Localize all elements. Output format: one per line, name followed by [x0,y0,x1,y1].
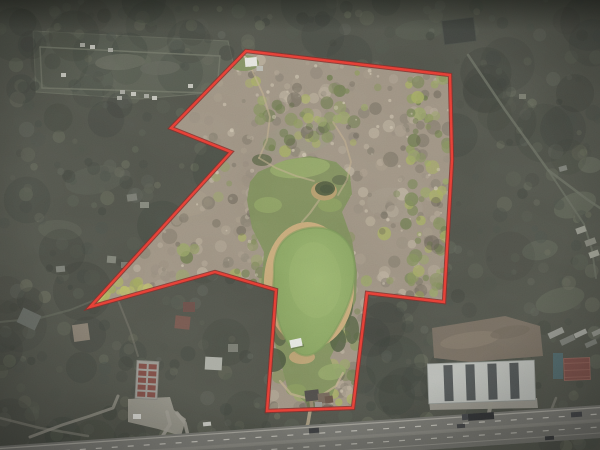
aerial-photo-svg [0,0,600,450]
aerial-photo [0,0,600,450]
vignette [0,0,600,450]
